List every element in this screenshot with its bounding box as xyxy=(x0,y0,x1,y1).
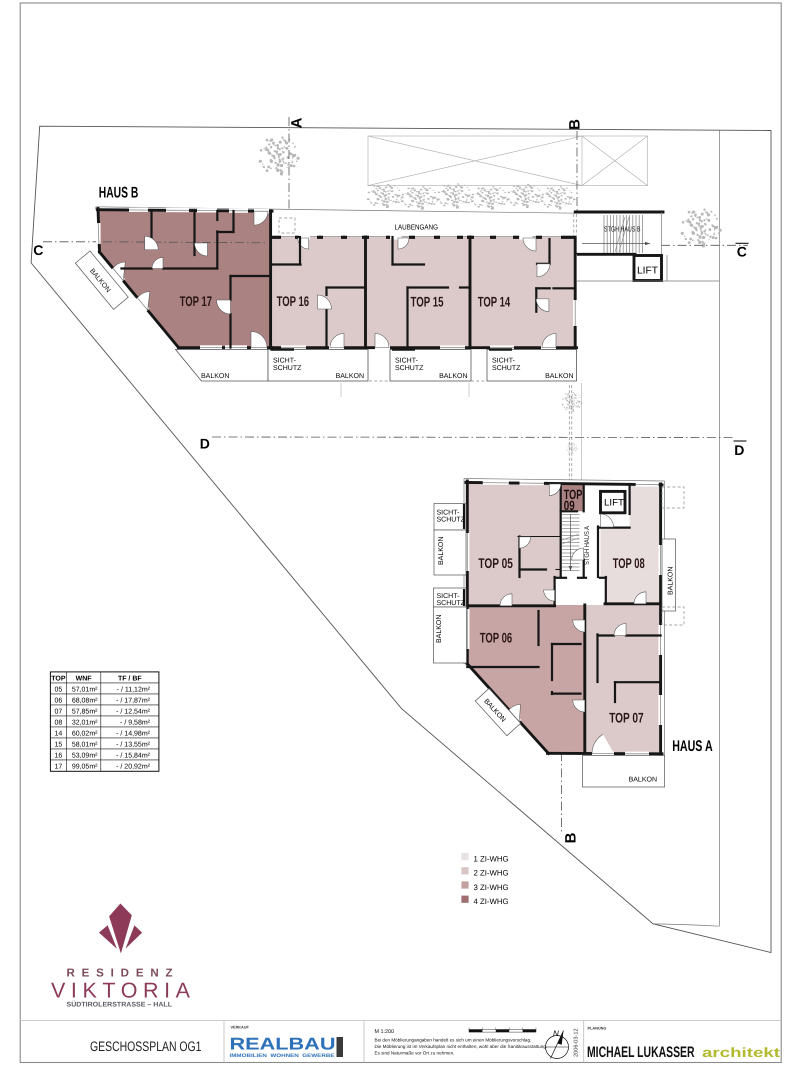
svg-text:SCHUTZ: SCHUTZ xyxy=(492,365,521,372)
svg-text:BALKON: BALKON xyxy=(336,373,364,380)
svg-text:MICHAEL LUKASSER: MICHAEL LUKASSER xyxy=(587,1044,695,1061)
svg-text:Bei den Möblierungangaben hand: Bei den Möblierungangaben handelt es sic… xyxy=(375,1038,532,1043)
svg-text:D: D xyxy=(734,442,744,458)
svg-text:BALKON: BALKON xyxy=(439,373,467,380)
svg-text:05: 05 xyxy=(55,686,63,693)
svg-text:Die Möblierung ist im Verkaufs: Die Möblierung ist im Verkaufsplan nicht… xyxy=(375,1044,548,1049)
svg-text:SCHUTZ: SCHUTZ xyxy=(437,517,466,524)
svg-text:1 ZI-WHG: 1 ZI-WHG xyxy=(474,855,509,864)
svg-text:TOP 06: TOP 06 xyxy=(480,630,513,646)
svg-text:IMMOBILIEN WOHNEN GEWERBE: IMMOBILIEN WOHNEN GEWERBE xyxy=(230,1053,336,1059)
svg-text:TOP 14: TOP 14 xyxy=(478,294,511,310)
svg-text:HAUS B: HAUS B xyxy=(99,185,139,202)
svg-text:VIKTORIA: VIKTORIA xyxy=(51,979,191,1003)
svg-text:LAUBENGANG: LAUBENGANG xyxy=(395,223,439,232)
svg-text:PLANUNG: PLANUNG xyxy=(588,1027,607,1031)
svg-text:SICHT-: SICHT- xyxy=(395,358,419,365)
svg-text:57,01m²: 57,01m² xyxy=(72,686,98,693)
svg-text:57,85m²: 57,85m² xyxy=(72,708,98,715)
svg-text:16: 16 xyxy=(55,752,63,759)
svg-text:08: 08 xyxy=(55,719,63,726)
svg-text:- / 14,98m²: - / 14,98m² xyxy=(116,729,151,737)
svg-text:SCHUTZ: SCHUTZ xyxy=(273,365,302,372)
svg-text:- / 15,84m²: - / 15,84m² xyxy=(116,751,151,759)
svg-text:REALBAU: REALBAU xyxy=(230,1035,336,1054)
svg-text:SCHUTZ: SCHUTZ xyxy=(395,365,424,372)
svg-text:2006-03-12: 2006-03-12 xyxy=(574,1028,580,1057)
svg-text:SCHUTZ: SCHUTZ xyxy=(437,600,466,607)
svg-text:BALKON: BALKON xyxy=(668,567,675,595)
svg-text:LIFT: LIFT xyxy=(604,498,624,509)
svg-text:99,05m²: 99,05m² xyxy=(72,763,98,770)
svg-text:BALKON: BALKON xyxy=(436,615,443,643)
svg-text:D: D xyxy=(200,436,210,452)
svg-text:BALKON: BALKON xyxy=(629,777,657,784)
svg-text:2 ZI-WHG: 2 ZI-WHG xyxy=(474,869,509,878)
svg-text:TOP 05: TOP 05 xyxy=(478,555,513,571)
svg-text:SICHT-: SICHT- xyxy=(492,358,516,365)
svg-text:53,09m²: 53,09m² xyxy=(72,752,98,759)
svg-text:STGH HAUS B: STGH HAUS B xyxy=(604,225,641,234)
svg-text:architekt: architekt xyxy=(702,1045,781,1060)
svg-text:SICHT-: SICHT- xyxy=(273,358,297,365)
svg-text:SICHT-: SICHT- xyxy=(437,593,461,600)
svg-text:58,01m²: 58,01m² xyxy=(72,741,98,748)
svg-text:TOP 17: TOP 17 xyxy=(180,293,213,309)
svg-text:GESCHOSSPLAN OG1: GESCHOSSPLAN OG1 xyxy=(90,1039,202,1054)
svg-text:LIFT: LIFT xyxy=(637,266,658,277)
svg-text:32,01m²: 32,01m² xyxy=(72,719,98,726)
svg-text:14: 14 xyxy=(55,730,63,737)
svg-text:- / 13,55m²: - / 13,55m² xyxy=(116,740,151,748)
svg-text:M 1:200: M 1:200 xyxy=(375,1029,394,1035)
svg-text:- / 20,92m²: - / 20,92m² xyxy=(116,762,151,770)
svg-text:Es sind Naturmaße vor Ort zu n: Es sind Naturmaße vor Ort zu nehmen. xyxy=(375,1051,455,1056)
svg-text:SICHT-: SICHT- xyxy=(437,510,461,517)
svg-text:BALKON: BALKON xyxy=(545,373,573,380)
svg-text:TOP 16: TOP 16 xyxy=(277,293,310,309)
svg-text:- / 9,58m²: - / 9,58m² xyxy=(120,718,151,726)
svg-text:06: 06 xyxy=(55,697,63,704)
svg-text:- / 11,12m²: - / 11,12m² xyxy=(117,685,151,693)
svg-text:C: C xyxy=(737,244,747,260)
svg-text:TOP: TOP xyxy=(51,675,66,682)
svg-text:15: 15 xyxy=(55,741,63,748)
svg-text:17: 17 xyxy=(55,763,63,770)
svg-text:SÜDTIROLERSTRASSE – HALL: SÜDTIROLERSTRASSE – HALL xyxy=(67,1001,173,1009)
svg-text:- / 17,87m²: - / 17,87m² xyxy=(116,696,151,704)
svg-text:BALKON: BALKON xyxy=(438,537,445,565)
svg-text:VERKAUF: VERKAUF xyxy=(231,1026,250,1030)
svg-text:B: B xyxy=(567,119,584,130)
svg-text:TOP 08: TOP 08 xyxy=(613,555,645,571)
svg-text:4 ZI-WHG: 4 ZI-WHG xyxy=(474,897,509,906)
svg-text:3 ZI-WHG: 3 ZI-WHG xyxy=(474,883,509,892)
svg-text:BALKON: BALKON xyxy=(201,373,229,380)
svg-text:TOP 15: TOP 15 xyxy=(411,294,444,310)
svg-text:WNF: WNF xyxy=(76,675,93,682)
svg-text:C: C xyxy=(33,242,43,258)
svg-text:HAUS A: HAUS A xyxy=(672,738,713,755)
svg-text:68,08m²: 68,08m² xyxy=(72,697,98,704)
svg-text:09: 09 xyxy=(564,498,575,513)
svg-text:TOP 07: TOP 07 xyxy=(609,710,644,726)
svg-text:B: B xyxy=(563,832,580,843)
svg-text:07: 07 xyxy=(55,708,63,715)
svg-text:- / 12,54m²: - / 12,54m² xyxy=(116,707,151,715)
svg-text:60,02m²: 60,02m² xyxy=(72,730,98,737)
svg-text:STGH HAUS A: STGH HAUS A xyxy=(584,526,591,565)
svg-text:TF / BF: TF / BF xyxy=(118,674,142,682)
svg-text:N: N xyxy=(553,1029,559,1038)
svg-text:A: A xyxy=(289,117,306,128)
